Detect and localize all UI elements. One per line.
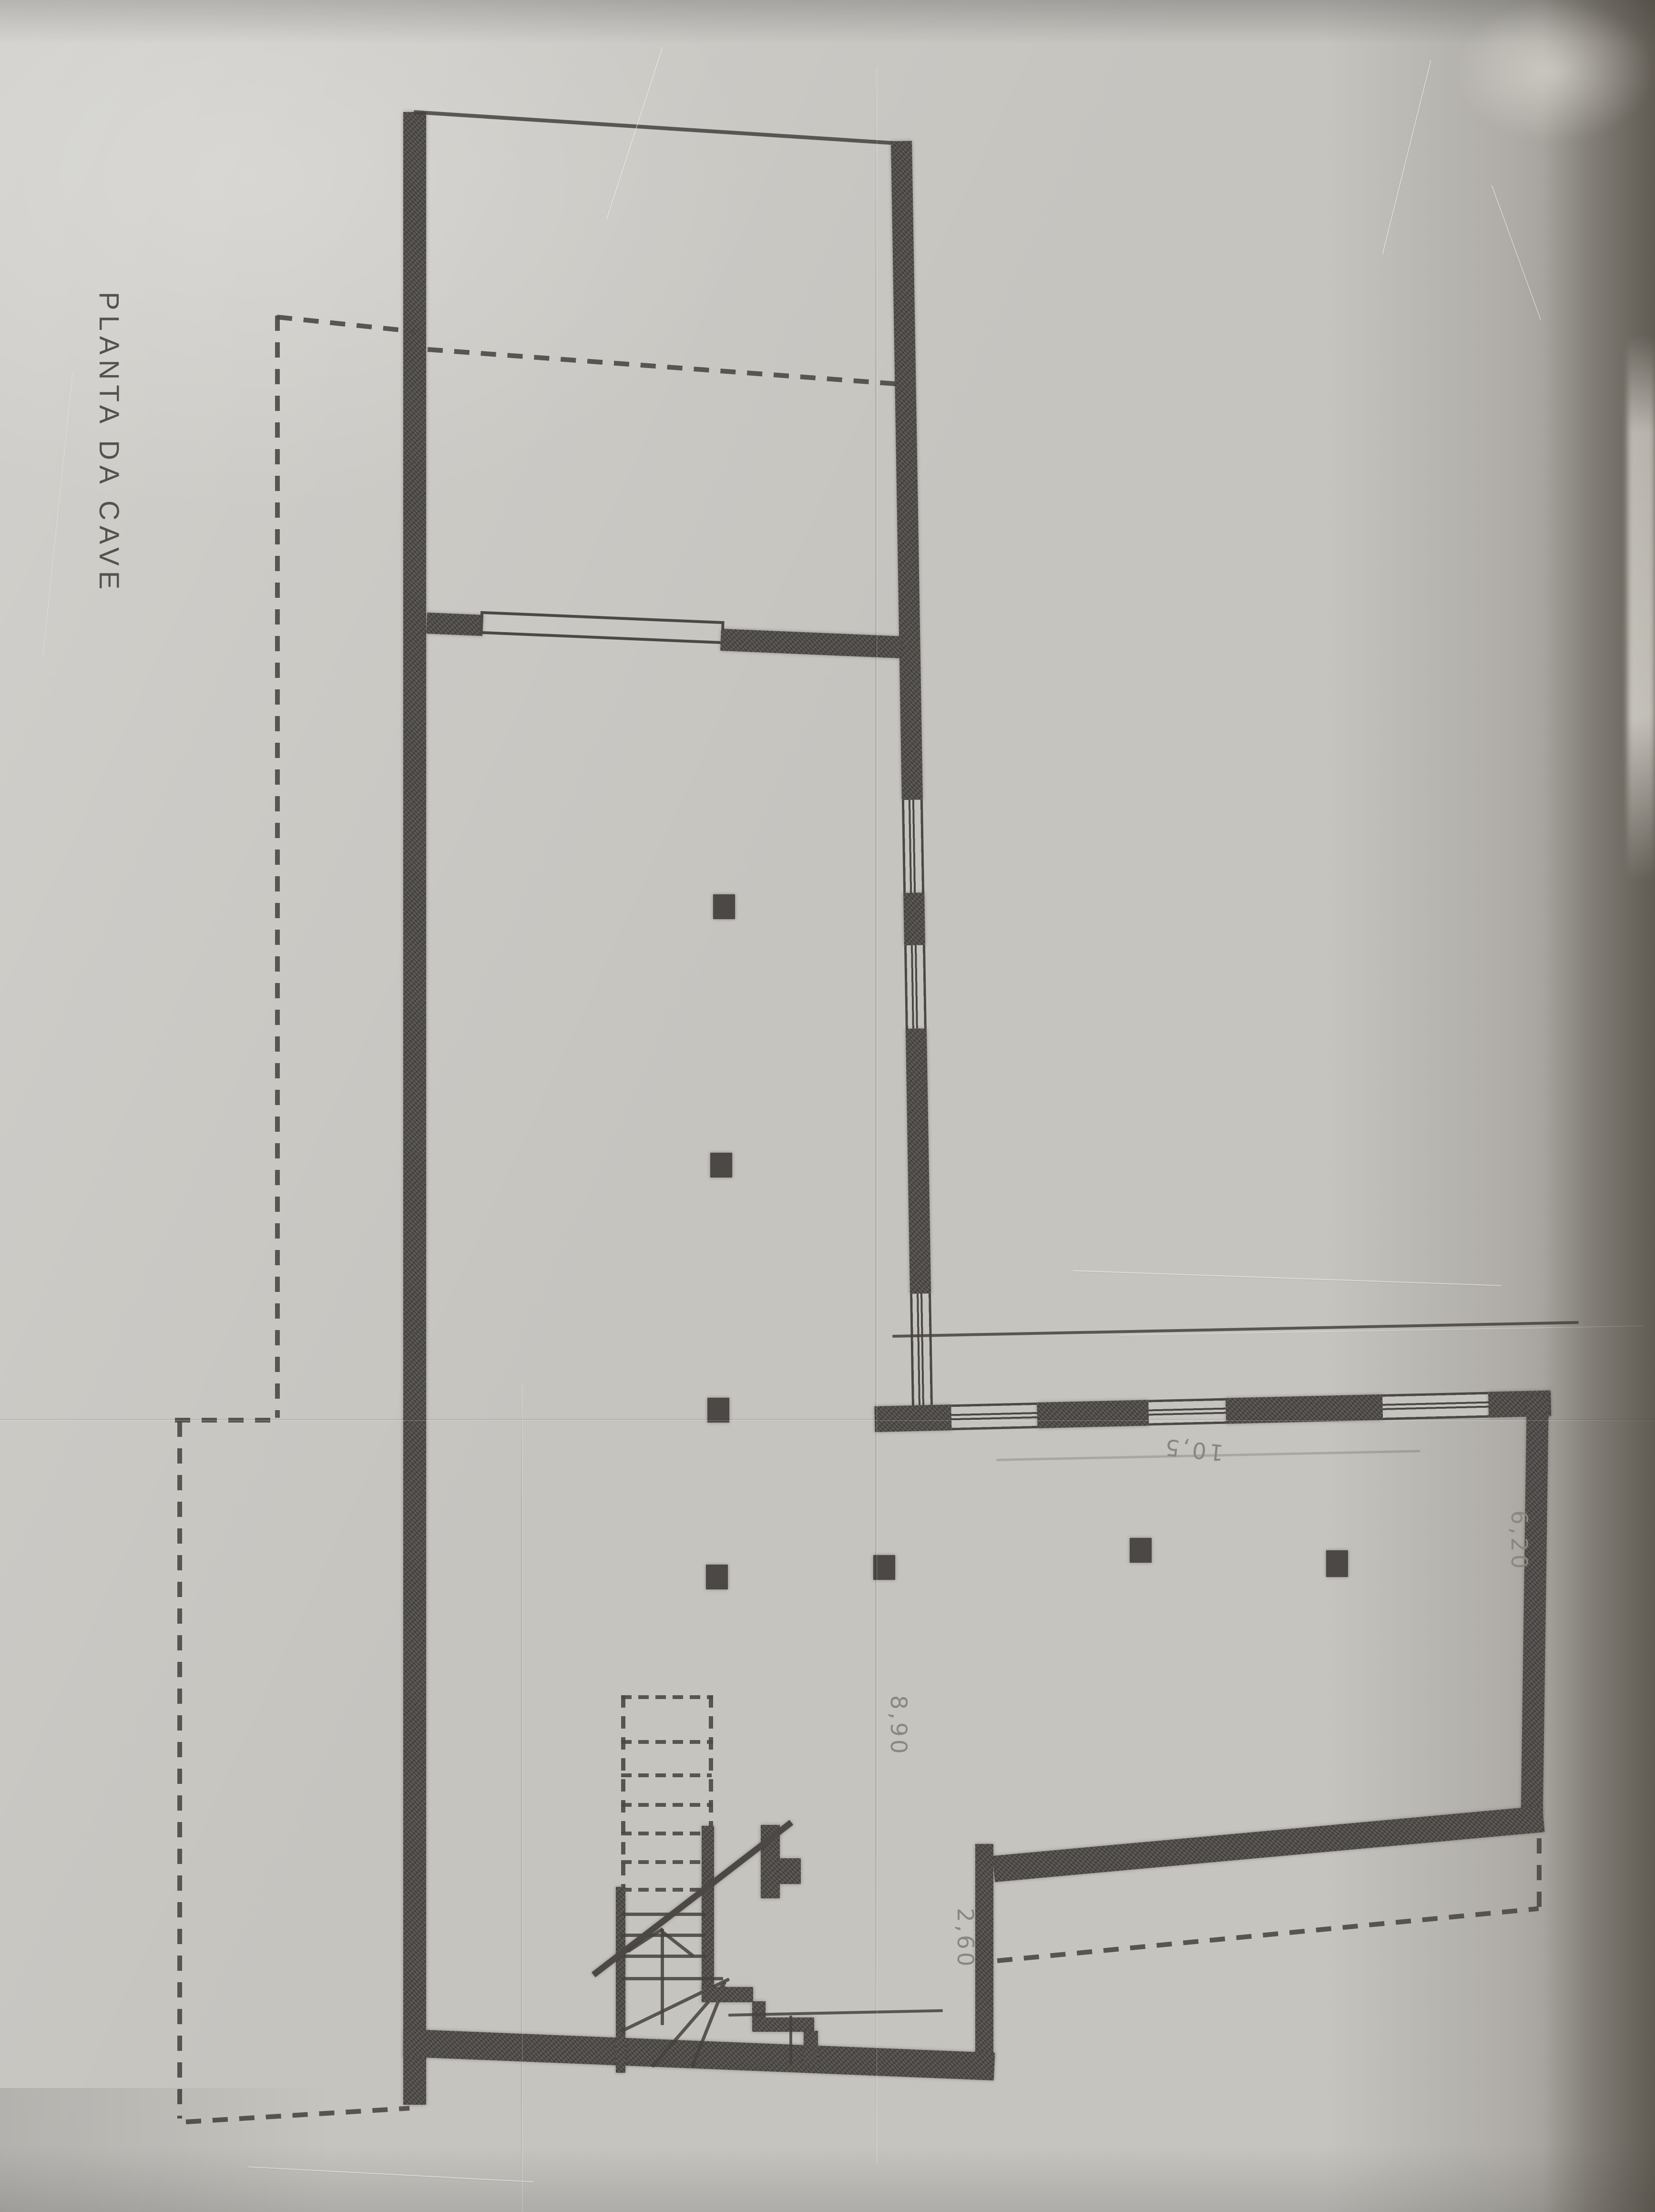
stair-winder-tread xyxy=(621,1977,723,1980)
stair-landing-dashed xyxy=(621,1695,713,1699)
stair-wall-jog xyxy=(702,1987,753,2002)
wall-segment xyxy=(906,1028,931,1294)
column xyxy=(1130,1538,1152,1563)
stair-winder-tread xyxy=(620,1977,730,2033)
wall-wing-bottom xyxy=(992,1806,1544,1882)
wall-left xyxy=(403,112,426,2105)
window-strip xyxy=(904,945,927,1029)
stair-wall-segment xyxy=(804,2031,818,2066)
interior-wall-segment xyxy=(720,629,901,658)
window-strip xyxy=(951,1403,1037,1430)
stair-edge-dashed-right xyxy=(709,1695,713,1827)
paper-crinkle xyxy=(606,47,663,220)
paper-crease xyxy=(875,67,877,2164)
stair-edge-dashed-left xyxy=(621,1695,625,1888)
stair-tread-dashed xyxy=(621,1832,712,1835)
window-strip xyxy=(910,1293,933,1409)
wall-segment xyxy=(903,892,925,945)
dashed-projection-line xyxy=(428,347,899,387)
stair-wall-jog xyxy=(752,2017,814,2032)
stair-wall-pier xyxy=(780,1858,801,1884)
corner-shadow xyxy=(0,2088,334,2212)
dimension-label-wing-length: 10,5 xyxy=(1156,1430,1230,1466)
paper-crease xyxy=(0,1419,1655,1420)
scanned-floor-plan-photo: PLANTA DA CAVE xyxy=(0,0,1655,2212)
corner-highlight xyxy=(1454,0,1655,143)
page-edge-shadow xyxy=(1542,0,1655,2212)
stair-wall-segment xyxy=(752,2001,766,2019)
dimension-label-wing-depth: 6,20 xyxy=(1506,1510,1532,1591)
door-opening-frame xyxy=(480,611,725,644)
wall-segment xyxy=(891,141,923,800)
window-strip xyxy=(902,799,924,893)
window-strip xyxy=(1382,1392,1489,1420)
paper-crease xyxy=(521,1382,522,2212)
dashed-boundary-top-out xyxy=(276,315,414,334)
wall-bottom xyxy=(403,2029,995,2080)
stair-tread xyxy=(621,1913,705,1916)
dashed-boundary-left xyxy=(275,316,280,1418)
stair-tread-dashed xyxy=(621,1803,712,1807)
dimension-label-hall-width: 8,90 xyxy=(885,1695,911,1781)
dimension-label-annex-width: 2,60 xyxy=(952,1908,978,1998)
dashed-boundary-bottom-right xyxy=(997,1906,1539,1963)
page-edge-highlight xyxy=(1627,334,1655,882)
wall-wing-top xyxy=(874,1391,1551,1432)
stair-landing-dashed xyxy=(621,1740,713,1744)
dashed-boundary-left-lower xyxy=(177,1422,182,2119)
stair-tread-dashed xyxy=(621,1773,712,1777)
plan-title: PLANTA DA CAVE xyxy=(93,292,125,702)
wall-wing-right xyxy=(1521,1396,1549,1816)
column xyxy=(713,894,735,919)
wall-top-line xyxy=(414,110,901,145)
window-strip xyxy=(1148,1398,1226,1426)
column xyxy=(1326,1550,1348,1577)
dashed-boundary-bottom-left xyxy=(186,2106,410,2124)
interior-wall xyxy=(425,609,902,681)
dashed-boundary-right xyxy=(1537,1838,1542,1909)
interior-wall-stub xyxy=(426,613,483,636)
stair-tread-dashed xyxy=(621,1860,712,1864)
paper-crinkle xyxy=(42,373,73,657)
column xyxy=(706,1565,728,1589)
stair-rail-right xyxy=(702,1826,714,1990)
paper-crinkle xyxy=(1492,185,1541,320)
paper-crinkle xyxy=(1382,60,1431,255)
step-edge-line xyxy=(789,2016,792,2065)
stair-direction-line xyxy=(661,1929,664,2025)
paper-crinkle xyxy=(1073,1270,1502,1286)
wall-segment xyxy=(1037,1400,1149,1428)
column xyxy=(710,1153,732,1178)
wall-right-upper-wing xyxy=(891,141,933,1409)
paper-crinkle xyxy=(248,2166,533,2182)
